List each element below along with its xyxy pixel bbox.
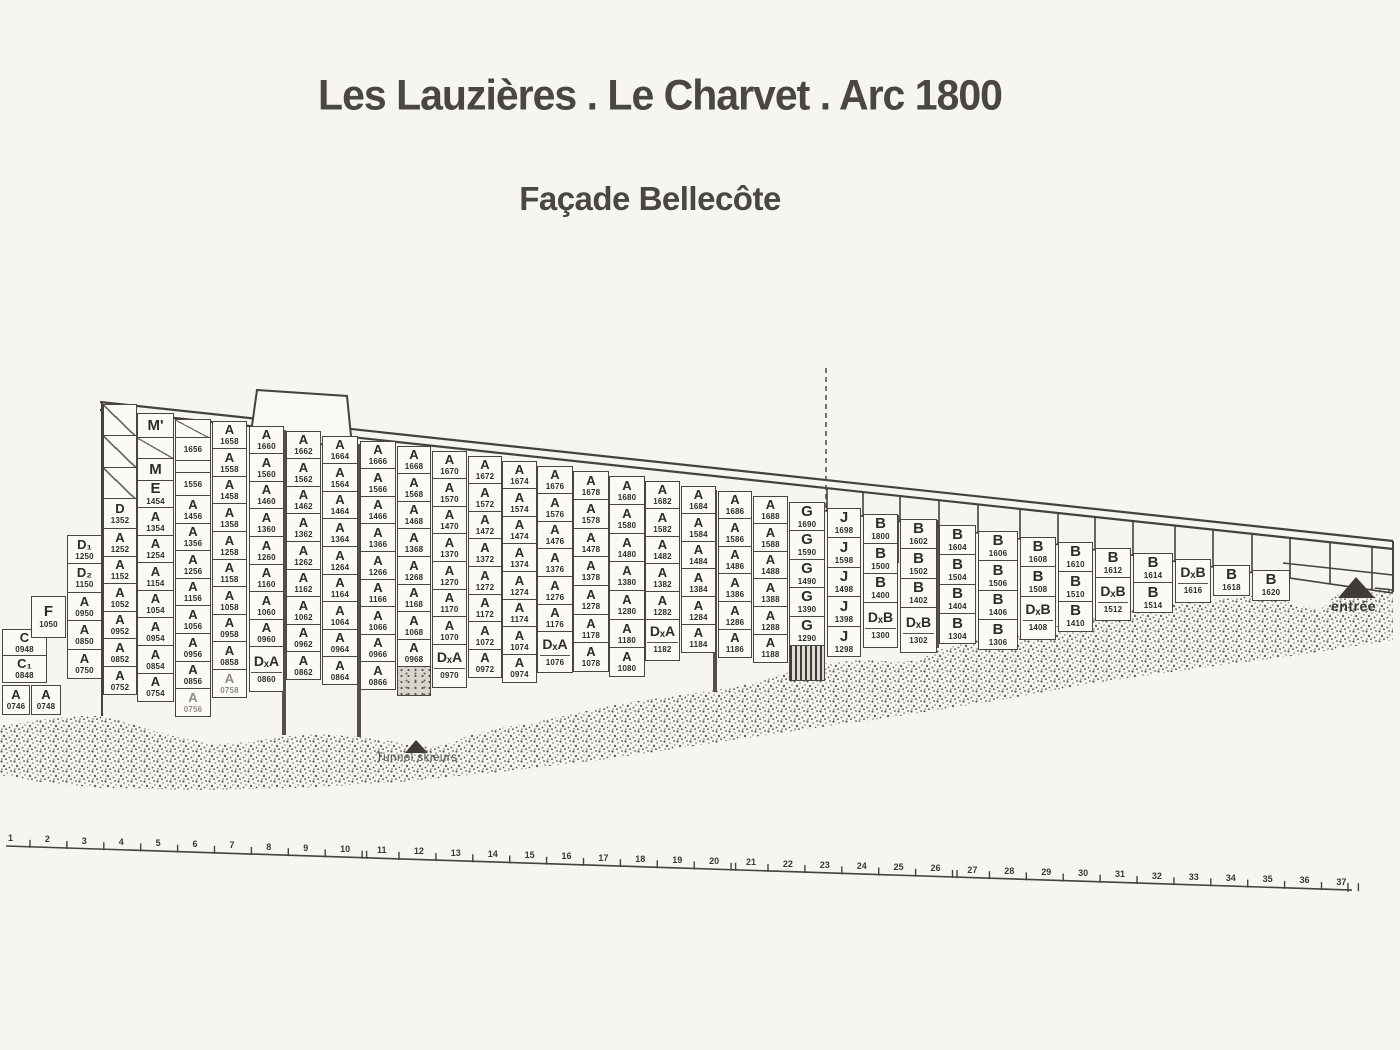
- unit-cell-1488: A1488: [753, 551, 788, 580]
- facade-column: A1674A1574A1474A1374A1274A1174A1074A0974: [502, 462, 537, 683]
- unit-cell-diag: [103, 467, 137, 500]
- ruler-number: 30: [1078, 868, 1088, 878]
- unit-cell-1478: A1478: [573, 528, 609, 558]
- unit-cell-0950: A0950: [67, 592, 102, 622]
- ruler-number: 24: [857, 861, 867, 871]
- unit-cell-1356: A1356: [175, 523, 211, 552]
- unit-cell-1490: G1490: [789, 559, 825, 589]
- unit-cell-1306: B1306: [978, 619, 1018, 650]
- unit-cell-1172: A1172: [468, 594, 502, 623]
- unit-cell-1298: J1298: [827, 626, 861, 657]
- unit-cell-1274: A1274: [502, 571, 537, 600]
- unit-cell-1688: A1688: [753, 496, 788, 525]
- unit-cell-1402: B1402: [900, 578, 937, 609]
- facade-column: M'ME1454A1354A1254A1154A1054A0954A0854A0…: [137, 414, 174, 702]
- unit-cell-0960: A0960: [249, 619, 284, 648]
- unit-cell-1176: A1176: [537, 604, 573, 633]
- ruler-number: 12: [414, 846, 424, 856]
- unit-cell-1560: A1560: [249, 453, 284, 482]
- ruler-number: 14: [488, 849, 498, 859]
- unit-cell-1386: A1386: [718, 573, 752, 602]
- unit-cell-1070: A1070: [432, 616, 467, 645]
- unit-cell-1620: B1620: [1252, 570, 1290, 601]
- facade-column: A1666A1566A1466A1366A1266A1166A1066A0966…: [360, 442, 396, 690]
- unit-cell-1664: A1664: [322, 436, 358, 465]
- unit-cell-1188: A1188: [753, 634, 788, 663]
- unit-cell-1472: A1472: [468, 511, 502, 540]
- unit-cell-1684: A1684: [681, 486, 716, 515]
- unit-cell-1404: B1404: [939, 584, 976, 615]
- facade-column: F1050: [31, 597, 66, 638]
- ruler-number: 13: [451, 848, 461, 858]
- unit-cell-1460: A1460: [249, 481, 284, 510]
- unit-cell-diag: [103, 435, 137, 468]
- unit-cell-0852: A0852: [103, 638, 137, 667]
- unit-cell-1366: A1366: [360, 523, 396, 552]
- unit-cell-1598: J1598: [827, 537, 861, 568]
- unit-cell-diag: [175, 419, 211, 439]
- entree-label: entrée: [1331, 598, 1376, 614]
- unit-cell-1658: A1658: [212, 421, 247, 450]
- unit-cell-1484: A1484: [681, 541, 716, 570]
- unit-cell-1506: B1506: [978, 560, 1018, 591]
- unit-cell-1456: A1456: [175, 495, 211, 524]
- unit-cell-1160: A1160: [249, 564, 284, 593]
- ruler-number: 17: [598, 853, 608, 863]
- facade-column: A1662A1562A1462A1362A1262A1162A1062A0962…: [286, 432, 321, 680]
- unit-cell-0850: A0850: [67, 620, 102, 650]
- unit-cell-big: M: [137, 458, 174, 482]
- ruler-number: 2: [45, 834, 50, 844]
- ruler-number: 8: [266, 842, 271, 852]
- unit-cell-1586: A1586: [718, 518, 752, 547]
- unit-cell-1564: A1564: [322, 463, 358, 492]
- ruler-number: 1: [8, 833, 13, 843]
- unit-cell-0966: A0966: [360, 634, 396, 663]
- facade-column: A1678A1578A1478A1378A1278A1178A1078: [573, 472, 609, 672]
- unit-cell-0752: A0752: [103, 666, 137, 695]
- unit-cell-1608: B1608: [1020, 537, 1056, 568]
- unit-cell-1800: B1800: [863, 514, 898, 545]
- ruler-number: 6: [193, 839, 198, 849]
- facade-column: A1658A1558A1458A1358A1258A1158A1058A0958…: [212, 422, 247, 698]
- unit-cell-1060: A1060: [249, 591, 284, 620]
- unit-cell-1250: D₁1250: [67, 535, 102, 565]
- ruler-number: 10: [340, 844, 350, 854]
- facade-column: A1686A1586A1486A1386A1286A1186: [718, 492, 752, 658]
- unit-cell-1570: A1570: [432, 478, 467, 507]
- facade-column: A1676A1576A1476A1376A1276A1176DₓA1076: [537, 467, 573, 673]
- unit-cell-1602: B1602: [900, 519, 937, 550]
- unit-cell-1080: A1080: [609, 647, 645, 677]
- facade-column: A1682A1582A1482A1382A1282DₓA1182: [645, 482, 680, 661]
- unit-cell-1168: A1168: [397, 584, 431, 613]
- facade-column: A0748: [31, 686, 61, 715]
- ruler-number: 21: [746, 857, 756, 867]
- ruler-number: 35: [1263, 874, 1273, 884]
- unit-cell-1398: J1398: [827, 596, 861, 627]
- unit-cell-1154: A1154: [137, 562, 174, 591]
- facade-column: B1606B1506B1406B1306: [978, 532, 1018, 650]
- ruler-number: 32: [1152, 871, 1162, 881]
- unit-cell-0970: DₓA0970: [432, 644, 467, 688]
- unit-cell-1616: DₓB1616: [1175, 559, 1211, 603]
- facade-column: G1690G1590G1490G1390G1290: [789, 503, 825, 681]
- unit-cell-1656: 1656: [175, 437, 211, 461]
- unit-cell-1078: A1078: [573, 642, 609, 672]
- unit-cell-1050: F1050: [31, 596, 66, 638]
- unit-cell-1498: J1498: [827, 567, 861, 598]
- ruler-number: 27: [967, 865, 977, 875]
- entree-marker-icon: [1338, 577, 1375, 598]
- unit-cell-1604: B1604: [939, 525, 976, 556]
- ruler-number: 29: [1041, 867, 1051, 877]
- unit-cell-1502: B1502: [900, 548, 937, 579]
- unit-cell-1504: B1504: [939, 554, 976, 585]
- unit-cell-1462: A1462: [286, 486, 321, 515]
- unit-cell-big: M': [137, 413, 174, 439]
- unit-cell-1290: G1290: [789, 616, 825, 646]
- unit-cell-1464: A1464: [322, 491, 358, 520]
- unit-cell-1668: A1668: [397, 446, 431, 475]
- ruler-number: 22: [783, 859, 793, 869]
- unit-cell-1672: A1672: [468, 456, 502, 485]
- unit-cell-1666: A1666: [360, 441, 396, 470]
- unit-cell-0848: C₁0848: [2, 655, 47, 683]
- unit-cell-1266: A1266: [360, 551, 396, 580]
- unit-cell-diag: [137, 437, 174, 459]
- unit-cell-1300: DₓB1300: [863, 602, 898, 648]
- unit-cell-1662: A1662: [286, 431, 321, 460]
- unit-cell-1278: A1278: [573, 585, 609, 615]
- unit-cell-0756: A0756: [175, 688, 211, 717]
- unit-cell-1556: 1556: [175, 472, 211, 496]
- unit-cell-1468: A1468: [397, 501, 431, 530]
- unit-cell-1272: A1272: [468, 566, 502, 595]
- unit-cell-1268: A1268: [397, 556, 431, 585]
- facade-column: C0948C₁0848: [2, 630, 47, 683]
- unit-cell-1304: B1304: [939, 613, 976, 644]
- tunnel-skieurs-label: Tunnel skieurs: [376, 752, 457, 764]
- unit-cell-1074: A1074: [502, 626, 537, 655]
- unit-cell-hatch: [789, 645, 825, 681]
- ruler-number: 25: [894, 862, 904, 872]
- unit-cell-1180: A1180: [609, 619, 645, 649]
- unit-cell-0748: A0748: [31, 685, 61, 715]
- unit-cell-1476: A1476: [537, 521, 573, 550]
- unit-cell-1508: B1508: [1020, 566, 1056, 597]
- unit-cell-0956: A0956: [175, 633, 211, 662]
- unit-cell-1410: B1410: [1058, 601, 1093, 632]
- unit-cell-1678: A1678: [573, 471, 609, 501]
- unit-cell-1562: A1562: [286, 458, 321, 487]
- unit-cell-0958: A0958: [212, 614, 247, 643]
- unit-cell-1612: B1612: [1095, 548, 1131, 579]
- unit-cell-1280: A1280: [609, 590, 645, 620]
- unit-cell-1566: A1566: [360, 468, 396, 497]
- unit-cell-1162: A1162: [286, 569, 321, 598]
- unit-cell-0754: A0754: [137, 673, 174, 702]
- unit-cell-1606: B1606: [978, 531, 1018, 562]
- unit-cell-1614: B1614: [1133, 553, 1173, 584]
- facade-diagram: Les Lauzières . Le Charvet . Arc 1800 Fa…: [0, 0, 1400, 1050]
- unit-cell-1680: A1680: [609, 476, 645, 506]
- ruler-number: 34: [1226, 873, 1236, 883]
- unit-cell-1676: A1676: [537, 466, 573, 495]
- facade-column: B1610B1510B1410: [1058, 543, 1093, 632]
- unit-cell-1512: DₓB1512: [1095, 577, 1131, 621]
- unit-cell-1372: A1372: [468, 538, 502, 567]
- unit-cell-1286: A1286: [718, 601, 752, 630]
- unit-cell-1572: A1572: [468, 483, 502, 512]
- ruler-number: 33: [1189, 872, 1199, 882]
- facade-column: B1620: [1252, 571, 1290, 601]
- unit-cell-1362: A1362: [286, 513, 321, 542]
- unit-cell-1062: A1062: [286, 596, 321, 625]
- unit-cell-1358: A1358: [212, 503, 247, 532]
- unit-cell-1262: A1262: [286, 541, 321, 570]
- unit-cell-0968: A0968: [397, 639, 431, 668]
- facade-column: A1680A1580A1480A1380A1280A1180A1080: [609, 477, 645, 677]
- unit-cell-1400: B1400: [863, 573, 898, 604]
- unit-cell-0862: A0862: [286, 651, 321, 680]
- ruler-number: 23: [820, 860, 830, 870]
- unit-cell-1380: A1380: [609, 561, 645, 591]
- unit-cell-diag: [103, 404, 137, 437]
- facade-column: A0746: [2, 686, 30, 715]
- unit-cell-1408: DₓB1408: [1020, 596, 1056, 640]
- unit-cell-0860: DₓA0860: [249, 646, 284, 692]
- unit-cell-1486: A1486: [718, 546, 752, 575]
- unit-cell-1514: B1514: [1133, 582, 1173, 613]
- unit-cell-0746: A0746: [2, 685, 30, 715]
- facade-column: B1618: [1213, 566, 1250, 596]
- unit-cell-1072: A1072: [468, 621, 502, 650]
- unit-cell-1058: A1058: [212, 586, 247, 615]
- unit-cell-1066: A1066: [360, 606, 396, 635]
- unit-cell-1466: A1466: [360, 496, 396, 525]
- unit-cell-1674: A1674: [502, 461, 537, 490]
- unit-cell-1376: A1376: [537, 548, 573, 577]
- ruler-number: 20: [709, 856, 719, 866]
- unit-cell-0854: A0854: [137, 645, 174, 674]
- unit-cell-1470: A1470: [432, 506, 467, 535]
- unit-cell-0962: A0962: [286, 624, 321, 653]
- facade-column: DₓB1616: [1175, 560, 1211, 603]
- unit-cell-1390: G1390: [789, 587, 825, 617]
- ruler-number: 4: [119, 837, 124, 847]
- facade-column: B1602B1502B1402DₓB1302: [900, 520, 937, 653]
- ruler-number: 9: [303, 843, 308, 853]
- unit-cell-0856: A0856: [175, 661, 211, 690]
- unit-cell-1482: A1482: [645, 536, 680, 565]
- unit-cell-1166: A1166: [360, 579, 396, 608]
- unit-cell-0858: A0858: [212, 641, 247, 670]
- ruler-number: 11: [377, 845, 387, 855]
- unit-cell-1282: A1282: [645, 591, 680, 620]
- unit-cell-1164: A1164: [322, 574, 358, 603]
- unit-cell-1052: A1052: [103, 583, 137, 612]
- unit-cell-1384: A1384: [681, 568, 716, 597]
- unit-cell-1388: A1388: [753, 578, 788, 607]
- unit-cell-1582: A1582: [645, 508, 680, 537]
- unit-cell-1258: A1258: [212, 531, 247, 560]
- facade-column: A1688A1588A1488A1388A1288A1188: [753, 497, 788, 663]
- unit-cell-1364: A1364: [322, 518, 358, 547]
- unit-cell-1276: A1276: [537, 576, 573, 605]
- facade-column: B1608B1508DₓB1408: [1020, 538, 1056, 640]
- unit-cell-1178: A1178: [573, 614, 609, 644]
- unit-cell-1354: A1354: [137, 507, 174, 536]
- ruler-number: 18: [635, 854, 645, 864]
- ruler-number: 28: [1004, 866, 1014, 876]
- unit-cell-1682: A1682: [645, 481, 680, 510]
- unit-cell-0954: A0954: [137, 617, 174, 646]
- unit-cell-1054: A1054: [137, 590, 174, 619]
- unit-cell-1150: D₂1150: [67, 563, 102, 593]
- unit-cell-1056: A1056: [175, 605, 211, 634]
- unit-cell-1302: DₓB1302: [900, 607, 937, 653]
- ruler-number: 16: [562, 851, 572, 861]
- ruler-number: 19: [672, 855, 682, 865]
- ruler-number: 36: [1300, 875, 1310, 885]
- ruler-number: 3: [82, 836, 87, 846]
- unit-cell-0964: A0964: [322, 629, 358, 658]
- ruler-number: 5: [156, 838, 161, 848]
- unit-cell-0952: A0952: [103, 611, 137, 640]
- ruler-number: 31: [1115, 869, 1125, 879]
- unit-cell-1558: A1558: [212, 448, 247, 477]
- ruler-number: 37: [1336, 877, 1346, 887]
- ruler-number: 26: [931, 863, 941, 873]
- facade-column: D₁1250D₂1150A0950A0850A0750: [67, 536, 102, 679]
- facade-column: 16561556A1456A1356A1256A1156A1056A0956A0…: [175, 420, 211, 717]
- unit-cell-1156: A1156: [175, 578, 211, 607]
- facade-column: B1614B1514: [1133, 554, 1173, 613]
- unit-cell-1574: A1574: [502, 488, 537, 517]
- unit-cell-1256: A1256: [175, 550, 211, 579]
- unit-cell-1170: A1170: [432, 589, 467, 618]
- facade-column: A1670A1570A1470A1370A1270A1170A1070DₓA09…: [432, 452, 467, 688]
- unit-cell-1374: A1374: [502, 543, 537, 572]
- facade-column: A1668A1568A1468A1368A1268A1168A1068A0968: [397, 447, 431, 696]
- unit-cell-1474: A1474: [502, 516, 537, 545]
- facade-column: A1660A1560A1460A1360A1260A1160A1060A0960…: [249, 427, 284, 692]
- unit-cell-1698: J1698: [827, 508, 861, 539]
- unit-cell-1580: A1580: [609, 504, 645, 534]
- unit-cell-0866: A0866: [360, 661, 396, 690]
- unit-cell-0758: A0758: [212, 669, 247, 698]
- unit-cell-1670: A1670: [432, 451, 467, 480]
- unit-cell-1064: A1064: [322, 601, 358, 630]
- unit-cell-1686: A1686: [718, 491, 752, 520]
- unit-cell-1618: B1618: [1213, 565, 1250, 596]
- unit-cell-1568: A1568: [397, 473, 431, 502]
- unit-cell-1610: B1610: [1058, 542, 1093, 573]
- unit-cell-1500: B1500: [863, 543, 898, 574]
- ruler-number: 7: [229, 840, 234, 850]
- unit-cell-1578: A1578: [573, 499, 609, 529]
- unit-cell-1270: A1270: [432, 561, 467, 590]
- unit-cell-1186: A1186: [718, 629, 752, 658]
- facade-column: B1612DₓB1512: [1095, 549, 1131, 621]
- unit-cell-1184: A1184: [681, 624, 716, 653]
- facade-column: A1684A1584A1484A1384A1284A1184: [681, 487, 716, 653]
- unit-cell-1264: A1264: [322, 546, 358, 575]
- ruler-number: 15: [525, 850, 535, 860]
- unit-cell-stip: [397, 666, 431, 696]
- unit-cell-1254: A1254: [137, 535, 174, 564]
- unit-cell-1480: A1480: [609, 533, 645, 563]
- unit-cell-1076: DₓA1076: [537, 631, 573, 673]
- unit-cell-1352: D1352: [103, 498, 137, 529]
- unit-cell-1590: G1590: [789, 530, 825, 560]
- facade-column: B1604B1504B1404B1304: [939, 526, 976, 644]
- unit-cell-1260: A1260: [249, 536, 284, 565]
- facade-column: B1800B1500B1400DₓB1300: [863, 515, 898, 648]
- unit-cell-0750: A0750: [67, 649, 102, 679]
- unit-cell-1174: A1174: [502, 599, 537, 628]
- unit-cell-1584: A1584: [681, 513, 716, 542]
- unit-cell-1576: A1576: [537, 493, 573, 522]
- unit-cell-0864: A0864: [322, 656, 358, 685]
- unit-cell-1288: A1288: [753, 606, 788, 635]
- unit-cell-1182: DₓA1182: [645, 619, 680, 661]
- unit-cell-1378: A1378: [573, 556, 609, 586]
- unit-cell-1252: A1252: [103, 528, 137, 557]
- unit-cell-1454: E1454: [137, 480, 174, 508]
- unit-cell-1690: G1690: [789, 502, 825, 532]
- unit-cell-1406: B1406: [978, 590, 1018, 621]
- unit-cell-0972: A0972: [468, 649, 502, 678]
- unit-cell-1660: A1660: [249, 426, 284, 455]
- unit-cell-1382: A1382: [645, 563, 680, 592]
- unit-cell-1510: B1510: [1058, 571, 1093, 602]
- unit-cell-1368: A1368: [397, 528, 431, 557]
- facade-column: A1672A1572A1472A1372A1272A1172A1072A0972: [468, 457, 502, 678]
- unit-cell-1284: A1284: [681, 596, 716, 625]
- unit-cell-0974: A0974: [502, 654, 537, 683]
- facade-column: A1664A1564A1464A1364A1264A1164A1064A0964…: [322, 437, 358, 685]
- unit-cell-1152: A1152: [103, 556, 137, 585]
- unit-cell-1068: A1068: [397, 611, 431, 640]
- unit-cell-1588: A1588: [753, 523, 788, 552]
- unit-cell-1158: A1158: [212, 559, 247, 588]
- facade-column: J1698J1598J1498J1398J1298: [827, 509, 861, 657]
- unit-cell-1458: A1458: [212, 476, 247, 505]
- unit-cell-1360: A1360: [249, 508, 284, 537]
- unit-cell-1370: A1370: [432, 533, 467, 562]
- facade-column: D1352A1252A1152A1052A0952A0852A0752: [103, 405, 137, 695]
